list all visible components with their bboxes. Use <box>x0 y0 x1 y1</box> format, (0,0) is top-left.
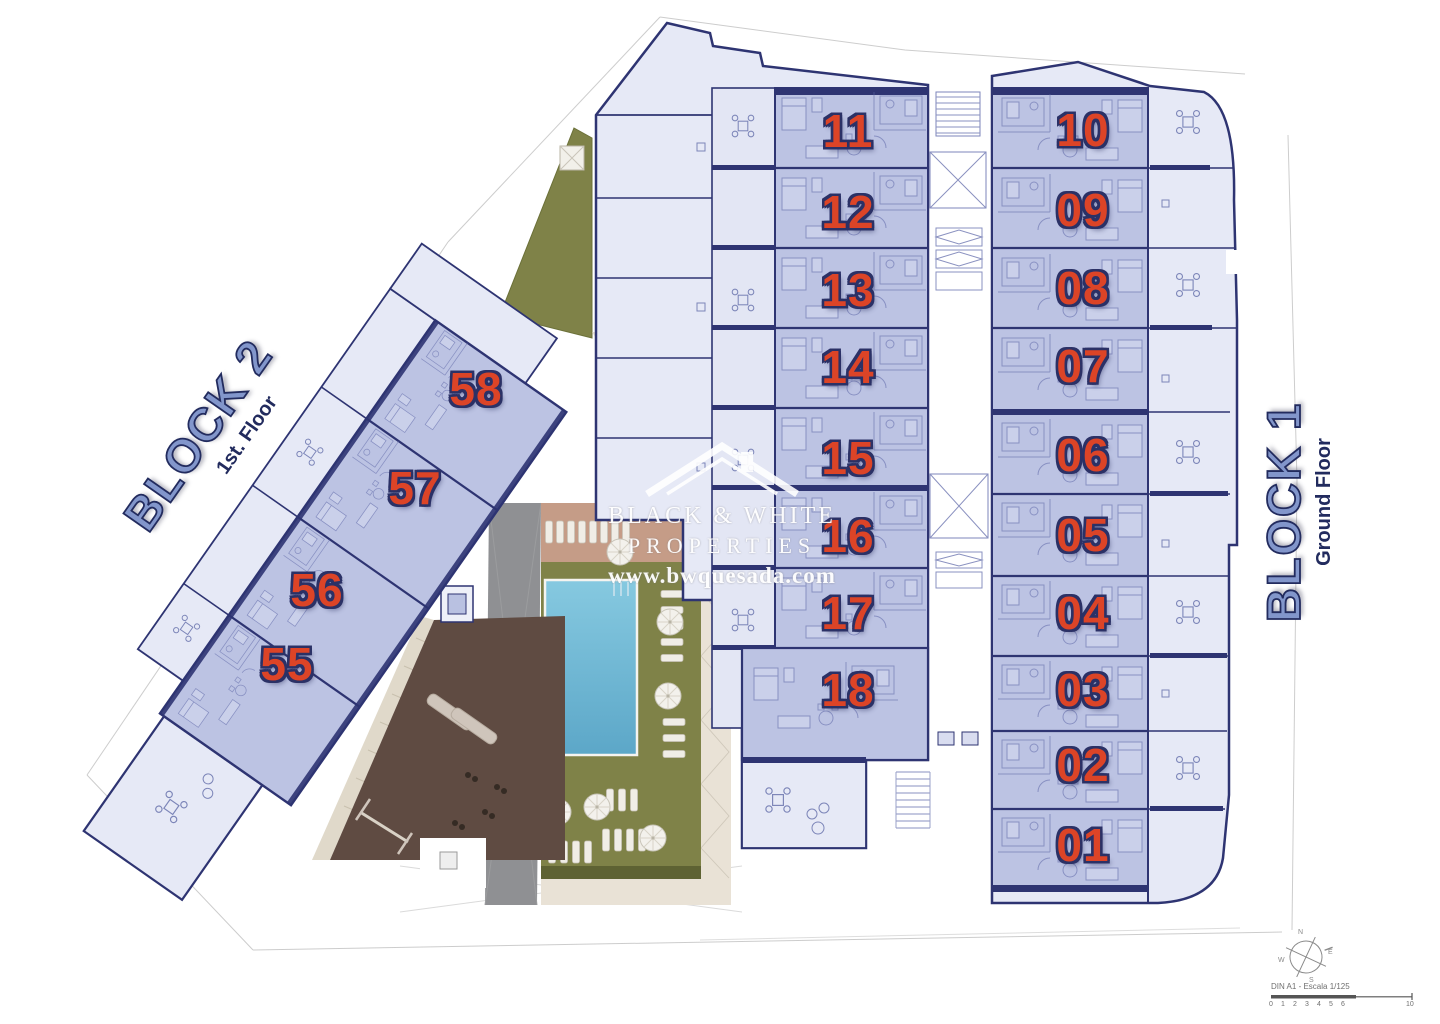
scale-tick-6: 6 <box>1341 1001 1345 1008</box>
watermark: BLACK & WHITE PROPERTIES www.bwquesada.c… <box>608 440 836 589</box>
unit-57-label: 57 <box>388 461 441 515</box>
scale-tick-3: 3 <box>1305 1001 1309 1008</box>
scale-bar <box>1271 993 1412 1000</box>
unit-05-label: 05 <box>1056 508 1109 562</box>
unit-03-label: 03 <box>1056 663 1109 717</box>
watermark-house-icon <box>637 440 807 498</box>
scale-tick-1: 1 <box>1281 1001 1285 1008</box>
scale-tick-4: 4 <box>1317 1001 1321 1008</box>
compass-n-label: N <box>1298 929 1303 936</box>
unit-18-label: 18 <box>821 663 874 717</box>
unit-58-label: 58 <box>449 362 502 416</box>
unit-55-label: 55 <box>260 637 313 691</box>
unit-02-label: 02 <box>1056 738 1109 792</box>
unit-04-label: 04 <box>1056 586 1109 640</box>
floor-plan-canvas: BLOCK 2 1st. Floor BLOCK 1 Ground Floor … <box>0 0 1440 1024</box>
unit-07-label: 07 <box>1056 339 1109 393</box>
compass-icon <box>1277 928 1335 986</box>
unit-14-label: 14 <box>821 340 874 394</box>
compass-s-label: S <box>1309 977 1314 984</box>
unit-13-label: 13 <box>821 263 874 317</box>
unit-56-label: 56 <box>290 563 343 617</box>
compass-w-label: W <box>1278 957 1285 964</box>
scale-tick-5: 5 <box>1329 1001 1333 1008</box>
unit-06-label: 06 <box>1056 428 1109 482</box>
block1-title: BLOCK 1 <box>1256 402 1311 622</box>
utility-structure <box>441 586 473 622</box>
garden-triangle <box>500 128 592 338</box>
block1-label: BLOCK 1 Ground Floor <box>1256 402 1336 622</box>
scale-tick-0: 0 <box>1269 1001 1273 1008</box>
watermark-line3: www.bwquesada.com <box>608 563 836 589</box>
scale-tick-10: 10 <box>1406 1001 1414 1008</box>
unit-08-label: 08 <box>1056 261 1109 315</box>
unit-09-label: 09 <box>1056 183 1109 237</box>
scale-tick-2: 2 <box>1293 1001 1297 1008</box>
compass-e-label: E <box>1328 949 1333 956</box>
watermark-line2: PROPERTIES <box>608 533 836 559</box>
block1-subtitle: Ground Floor <box>1313 402 1336 602</box>
unit-01-label: 01 <box>1056 818 1109 872</box>
unit-17-label: 17 <box>821 586 874 640</box>
block1-right-wing <box>992 62 1240 903</box>
unit-12-label: 12 <box>821 185 874 239</box>
unit-10-label: 10 <box>1056 103 1109 157</box>
watermark-line1: BLACK & WHITE <box>608 503 836 530</box>
unit-11-label: 11 <box>823 104 874 158</box>
